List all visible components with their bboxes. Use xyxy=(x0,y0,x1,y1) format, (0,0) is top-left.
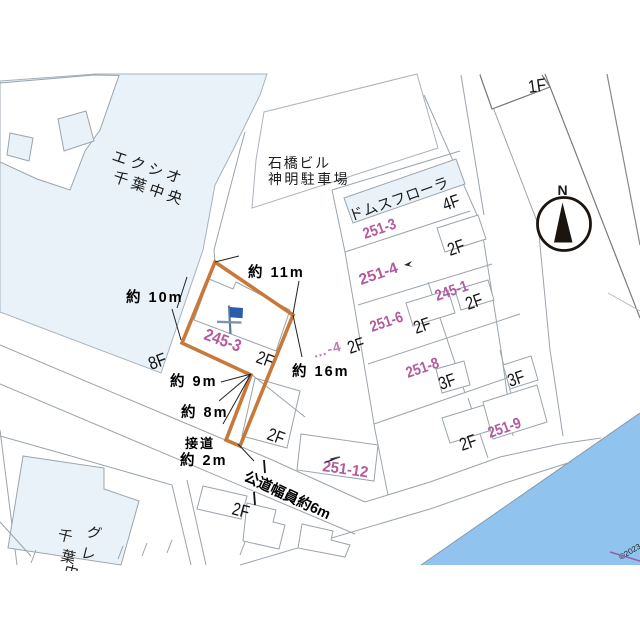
svg-text:1F: 1F xyxy=(527,75,548,97)
svg-text:神明駐車場: 神明駐車場 xyxy=(268,171,350,187)
svg-text:接道: 接道 xyxy=(185,436,215,451)
svg-text:約 2m: 約 2m xyxy=(180,451,228,469)
svg-text:N: N xyxy=(557,182,567,198)
svg-text:石橋ビル: 石橋ビル xyxy=(268,155,331,171)
svg-text:約 10m: 約 10m xyxy=(126,288,184,306)
svg-text:約 11m: 約 11m xyxy=(248,263,305,281)
svg-text:約 16m: 約 16m xyxy=(292,362,350,380)
svg-text:約 9m: 約 9m xyxy=(170,372,218,390)
svg-text:約 8m: 約 8m xyxy=(181,403,229,421)
